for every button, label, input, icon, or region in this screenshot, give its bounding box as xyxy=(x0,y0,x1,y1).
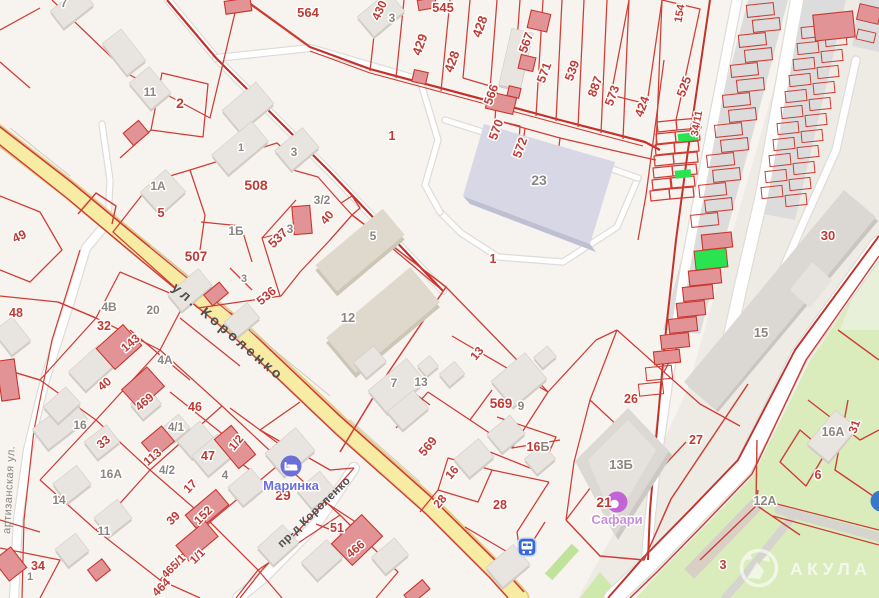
svg-text:34: 34 xyxy=(31,559,45,573)
svg-text:АКУЛА: АКУЛА xyxy=(790,559,871,579)
svg-text:16А: 16А xyxy=(100,467,122,481)
svg-text:16А: 16А xyxy=(822,425,845,439)
svg-text:1Б: 1Б xyxy=(228,224,244,238)
svg-text:13Б: 13Б xyxy=(609,457,633,472)
svg-text:27: 27 xyxy=(689,433,703,447)
svg-text:28: 28 xyxy=(493,498,507,512)
svg-text:14: 14 xyxy=(52,493,66,507)
svg-text:508: 508 xyxy=(244,177,268,193)
svg-text:3: 3 xyxy=(287,222,294,236)
svg-text:6: 6 xyxy=(815,468,822,482)
svg-text:4/2: 4/2 xyxy=(159,465,175,477)
svg-text:12: 12 xyxy=(341,310,355,325)
svg-text:1: 1 xyxy=(27,571,33,583)
svg-text:48: 48 xyxy=(9,306,23,320)
svg-text:11: 11 xyxy=(144,85,157,99)
svg-text:4: 4 xyxy=(222,468,229,482)
svg-text:1А: 1А xyxy=(150,179,166,193)
svg-text:16Б: 16Б xyxy=(527,440,550,454)
svg-text:3: 3 xyxy=(291,145,298,159)
svg-text:21: 21 xyxy=(596,494,612,510)
svg-text:4А: 4А xyxy=(157,353,173,367)
svg-text:7: 7 xyxy=(391,376,398,390)
svg-text:51: 51 xyxy=(330,521,344,535)
svg-text:507: 507 xyxy=(185,249,208,264)
svg-text:3: 3 xyxy=(720,558,727,572)
svg-text:5: 5 xyxy=(157,205,164,220)
svg-text:Сафари: Сафари xyxy=(591,512,642,527)
svg-text:1: 1 xyxy=(238,142,244,154)
svg-text:Маринка: Маринка xyxy=(263,478,320,493)
svg-text:1: 1 xyxy=(490,252,497,266)
svg-text:32: 32 xyxy=(97,319,111,333)
svg-text:47: 47 xyxy=(201,449,215,463)
svg-text:23: 23 xyxy=(531,172,547,188)
svg-text:4/1: 4/1 xyxy=(168,422,185,434)
svg-text:13: 13 xyxy=(414,375,428,389)
svg-text:5: 5 xyxy=(370,229,377,243)
svg-text:12А: 12А xyxy=(754,494,777,508)
svg-text:7: 7 xyxy=(61,0,68,10)
svg-text:569: 569 xyxy=(490,396,513,411)
svg-text:15: 15 xyxy=(754,325,768,340)
svg-text:30: 30 xyxy=(821,228,835,243)
svg-text:564: 564 xyxy=(297,5,319,20)
svg-text:3: 3 xyxy=(241,273,247,285)
svg-text:3/2: 3/2 xyxy=(314,193,331,207)
svg-text:3: 3 xyxy=(389,11,396,25)
svg-text:1: 1 xyxy=(389,129,396,143)
svg-text:46: 46 xyxy=(188,400,202,414)
svg-text:4В: 4В xyxy=(101,300,117,314)
svg-text:20: 20 xyxy=(146,303,160,317)
svg-text:26: 26 xyxy=(624,392,638,406)
svg-text:16: 16 xyxy=(73,418,87,432)
svg-text:2: 2 xyxy=(176,95,184,111)
svg-text:11: 11 xyxy=(98,524,111,538)
svg-text:545: 545 xyxy=(432,0,454,15)
svg-text:9: 9 xyxy=(518,399,525,413)
